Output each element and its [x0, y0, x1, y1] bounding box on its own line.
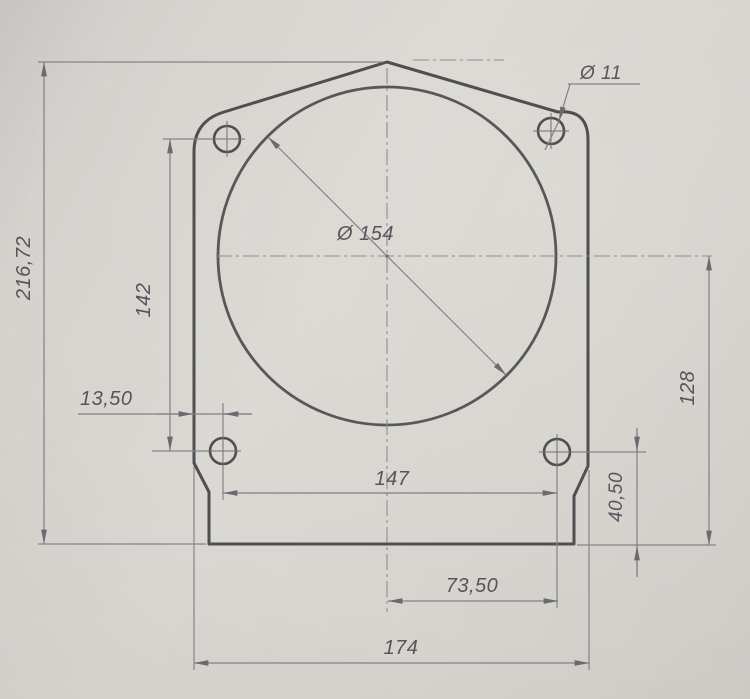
dim-bolt-horizontal-spacing: 147 [223, 468, 557, 493]
dim-overall-width-label: 174 [384, 637, 419, 659]
dim-overall-height-label: 216,72 [13, 236, 35, 301]
dim-bolt-horizontal-spacing-label: 147 [375, 468, 410, 490]
drawing-canvas: 216,72 142 13,50 147 73,50 174 128 [0, 0, 750, 699]
dim-overall-height: 216,72 [13, 62, 44, 544]
dim-hole-to-bottom-label: 40,50 [606, 472, 627, 522]
hole-crosshairs [205, 113, 575, 470]
dim-main-bore-diameter-label: Ø 154 [336, 223, 394, 245]
plate-geometry [194, 60, 712, 612]
paper-sheet: 216,72 142 13,50 147 73,50 174 128 [0, 0, 750, 699]
dim-edge-to-hole-label: 13,50 [80, 388, 133, 410]
dim-overall-width: 174 [194, 637, 589, 663]
dim-center-to-right-hole: 73,50 [388, 575, 558, 601]
dim-center-to-bottom: 128 [677, 256, 709, 545]
dim-hole-to-bottom: 40,50 [606, 428, 637, 577]
dim-bolt-vertical-spacing: 142 [133, 139, 170, 451]
dimensions: 216,72 142 13,50 147 73,50 174 128 [13, 62, 709, 663]
dim-bolt-hole-diameter-label: Ø 11 [579, 63, 622, 84]
dim-edge-to-hole: 13,50 [78, 388, 252, 414]
dim-center-to-right-hole-label: 73,50 [446, 575, 499, 597]
dim-bolt-hole-diameter: Ø 11 [545, 63, 640, 150]
dim-center-to-bottom-label: 128 [677, 371, 699, 406]
dim-bolt-vertical-spacing-label: 142 [133, 283, 155, 318]
extension-lines [38, 62, 716, 670]
